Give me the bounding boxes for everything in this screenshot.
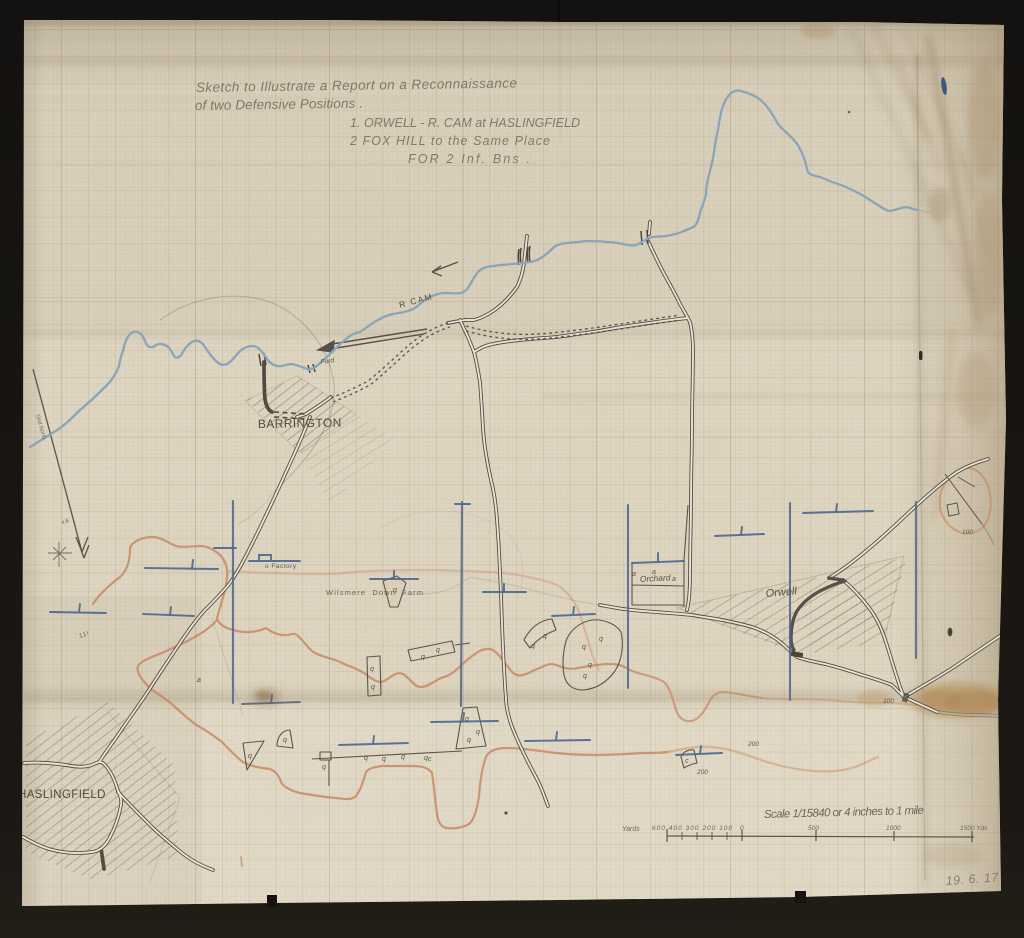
svg-text:q: q [382, 756, 386, 763]
svg-text:1. ORWELL - R. CAM at HASLINGF: 1. ORWELL - R. CAM at HASLINGFIELD [350, 116, 580, 130]
svg-text:q: q [322, 764, 326, 771]
svg-text:q: q [364, 755, 368, 762]
svg-text:500: 500 [808, 825, 819, 832]
svg-text:100: 100 [962, 529, 973, 536]
svg-text:q: q [283, 737, 287, 744]
svg-text:q: q [370, 666, 374, 673]
svg-text:1000: 1000 [886, 825, 901, 832]
svg-text:q: q [582, 644, 586, 651]
svg-text:q: q [599, 636, 603, 643]
svg-text:c: c [685, 758, 689, 765]
svg-text:1500 Yds: 1500 Yds [960, 825, 988, 832]
svg-text:200: 200 [747, 741, 759, 748]
svg-text:q: q [421, 654, 425, 661]
svg-text:of two Defensive Positions .: of two Defensive Positions . [195, 96, 363, 113]
svg-text:0: 0 [740, 825, 744, 832]
svg-text:100: 100 [883, 698, 894, 705]
svg-text:o Factory: o Factory [265, 563, 297, 570]
svg-text:q: q [393, 587, 397, 594]
svg-text:2 FOX HILL to the Same Place: 2 FOX HILL to the Same Place [349, 134, 550, 148]
svg-text:q: q [467, 737, 471, 744]
svg-text:Yards: Yards [622, 826, 640, 833]
svg-text:q: q [248, 753, 252, 760]
svg-text:a: a [652, 569, 656, 576]
svg-text:a: a [197, 677, 201, 684]
svg-text:q: q [476, 729, 480, 736]
svg-text:q: q [401, 754, 405, 761]
svg-text:q: q [371, 684, 375, 691]
svg-text:q: q [543, 633, 547, 640]
svg-text:200: 200 [696, 769, 708, 776]
svg-text:600 400 300 200 100: 600 400 300 200 100 [652, 825, 732, 832]
svg-text:q: q [583, 673, 587, 680]
svg-text:q: q [436, 647, 440, 654]
svg-text:q: q [465, 716, 469, 723]
svg-text:q: q [588, 662, 592, 669]
svg-text:FOR 2 Inf. Bns .: FOR 2 Inf. Bns . [408, 152, 530, 166]
svg-text:c: c [428, 756, 432, 763]
svg-text:HASLINGFIELD: HASLINGFIELD [18, 789, 106, 801]
svg-text:q: q [531, 643, 535, 650]
svg-text:Wilsmere Down Farm: Wilsmere Down Farm [326, 588, 423, 597]
svg-text:BARRINGTON: BARRINGTON [258, 416, 342, 431]
svg-text:a: a [672, 576, 676, 583]
svg-text:a: a [632, 571, 636, 578]
